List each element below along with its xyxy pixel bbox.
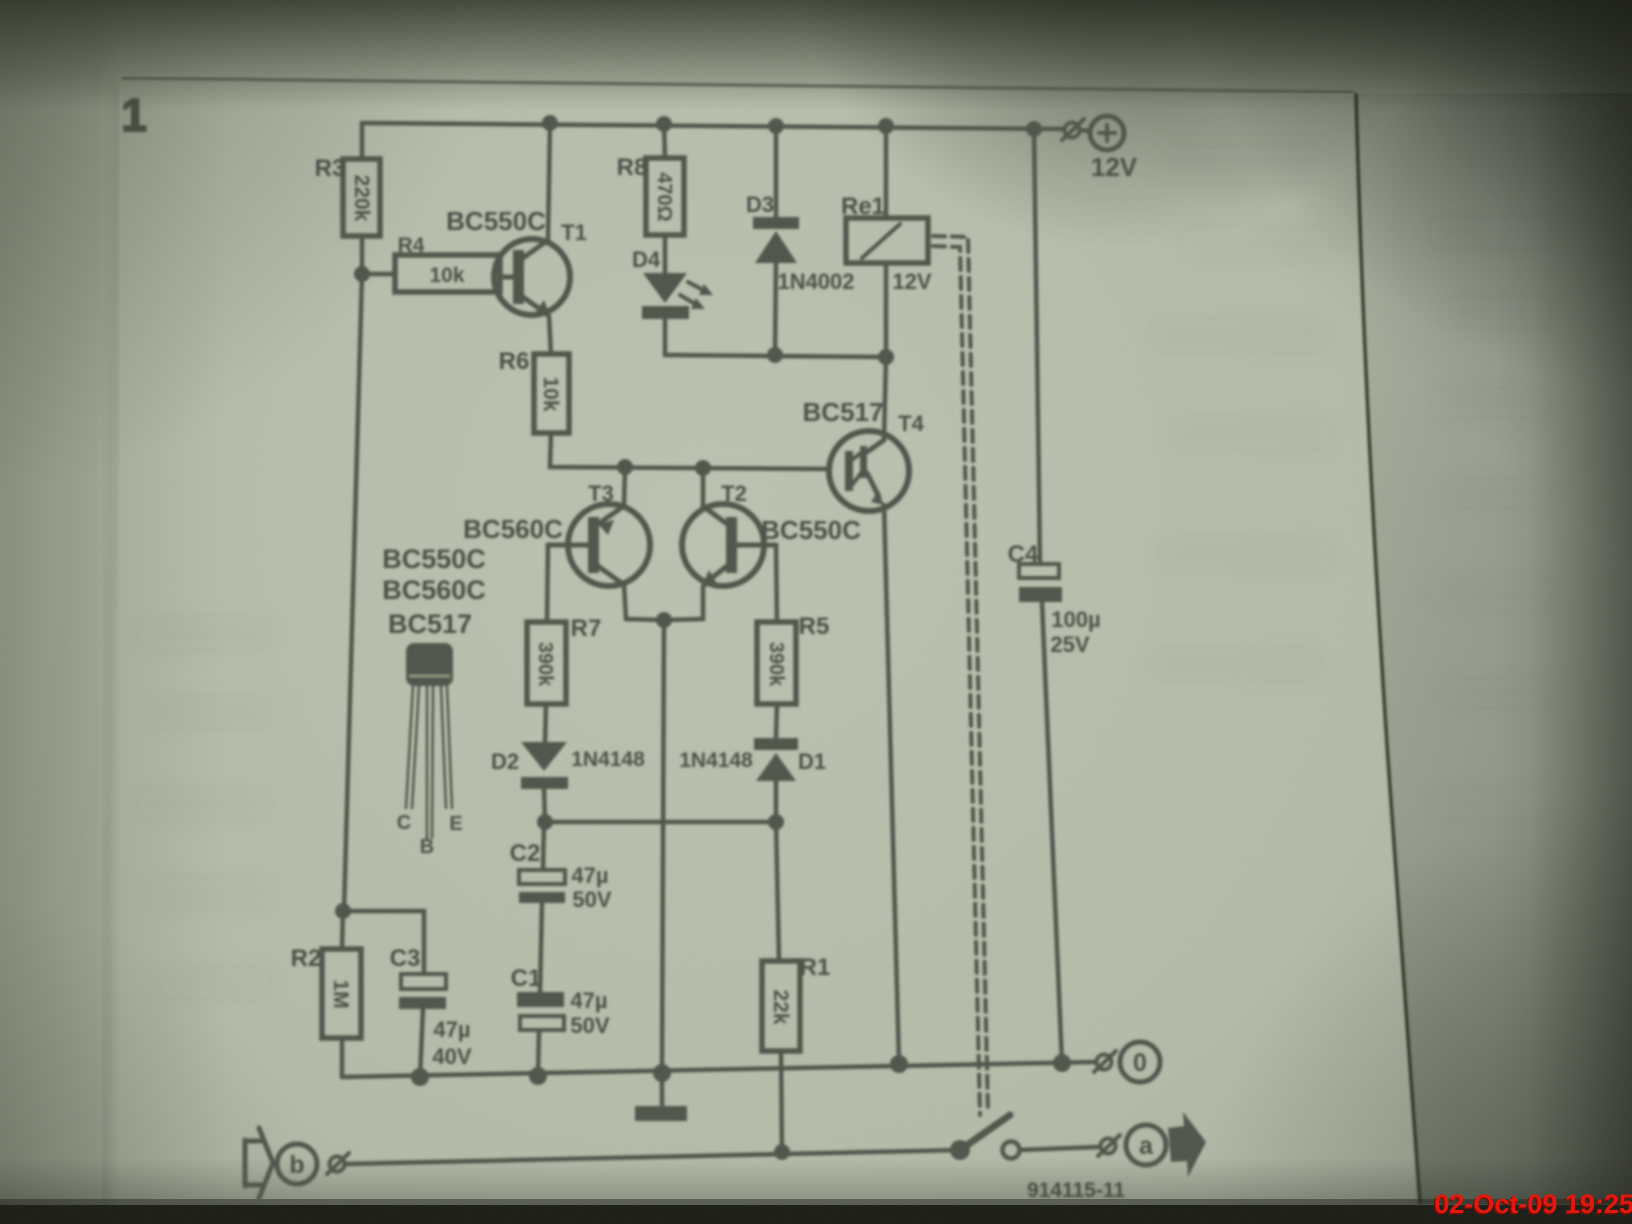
svg-text:02-Oct-09 19:25: 02-Oct-09 19:25 <box>1434 1189 1632 1219</box>
